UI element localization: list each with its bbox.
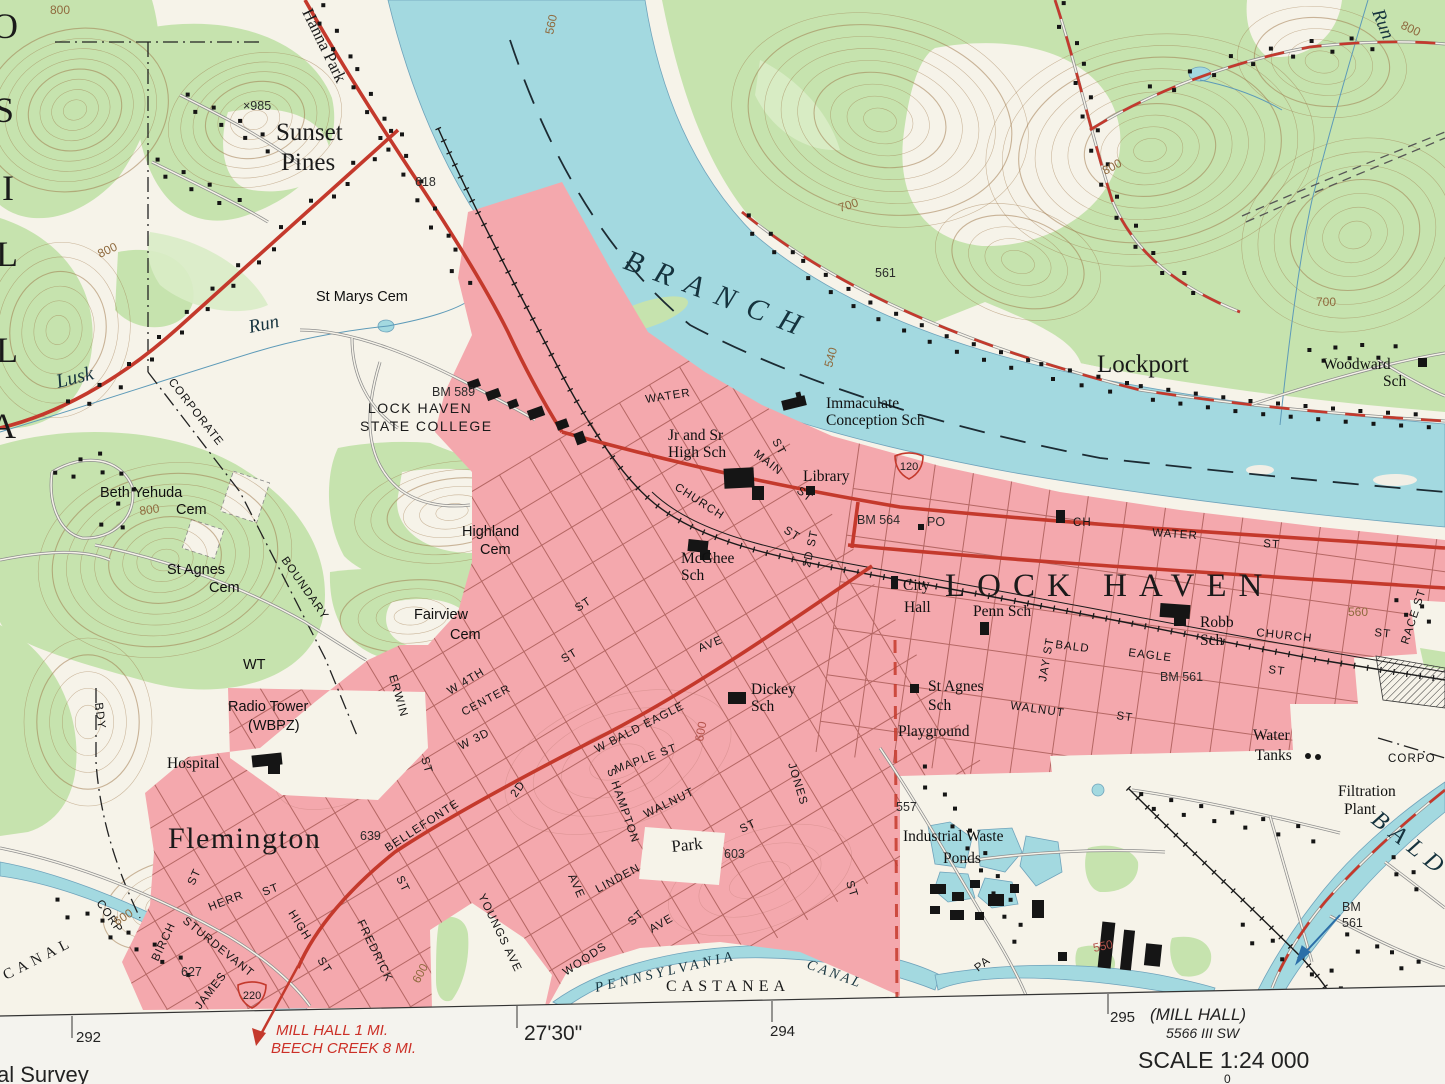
label-wt: WT <box>243 657 266 673</box>
label-radio-tower: Radio Tower <box>228 699 309 715</box>
label-radio-tower-callsign: (WBPZ) <box>248 718 300 734</box>
label-st-agnes-cem: St Agnes <box>167 562 225 578</box>
label-po: PO <box>927 515 945 529</box>
label-park: Park <box>670 834 703 856</box>
label-st-agnes-sch-2: Sch <box>928 697 952 714</box>
road-destination-1: MILL HALL 1 MI. <box>276 1022 388 1039</box>
label-highland-cem: Cem <box>480 542 511 558</box>
label-pines: Pines <box>281 149 335 176</box>
scalebar-zero: 0 <box>1224 1072 1231 1084</box>
label-jr-sr-2: High Sch <box>668 444 726 461</box>
street-water-e-st: ST <box>1263 538 1281 551</box>
tick-294: 294 <box>770 1023 795 1040</box>
label-lockport: Lockport <box>1097 351 1189 378</box>
label-flemington: Flemington <box>168 822 321 855</box>
bm-561-se-1: BM <box>1342 900 1361 914</box>
spot-639: 639 <box>360 829 381 843</box>
label-fairview: Fairview <box>414 607 469 623</box>
street-church-e-st: ST <box>1374 627 1392 641</box>
label-college-2: STATE COLLEGE <box>360 418 493 434</box>
label-immaculate-2: Conception Sch <box>826 412 925 429</box>
bm-589: BM 589 <box>432 385 475 399</box>
topographic-map: 120 220 Sunset Pines Hanna Park Flemingt… <box>0 0 1445 1084</box>
label-playground: Playground <box>898 723 970 740</box>
label-college-1: LOCK HAVEN <box>368 400 472 416</box>
spot-627: 627 <box>181 965 202 979</box>
label-robb: Robb <box>1200 614 1234 631</box>
label-mcghee: McGhee <box>681 550 734 567</box>
label-woodward: Woodward <box>1323 356 1391 373</box>
label-filtration-plant: Plant <box>1344 801 1377 818</box>
label-library: Library <box>803 468 850 485</box>
pond <box>1092 784 1104 796</box>
map-canvas: 120 220 Sunset Pines Hanna Park Flemingt… <box>0 0 1445 1084</box>
label-city: City <box>903 577 930 594</box>
boundary-red-dashed <box>895 640 897 1008</box>
bm-564: BM 564 <box>857 513 900 527</box>
label-mcghee-sch: Sch <box>681 567 705 584</box>
survey-credit: cal Survey <box>0 1062 89 1084</box>
bm-561-city: BM 561 <box>1160 670 1203 684</box>
spot-561: 561 <box>875 266 896 280</box>
edge-letter: I <box>2 168 14 208</box>
quad-id: 5566 III SW <box>1166 1025 1241 1041</box>
label-filtration: Filtration <box>1338 783 1396 800</box>
bm-561-se-2: 561 <box>1342 916 1363 930</box>
edge-letter: S <box>0 90 14 130</box>
tick-2730: 27'30" <box>524 1022 582 1045</box>
scale-text: SCALE 1:24 000 <box>1138 1047 1309 1073</box>
label-hall: Hall <box>904 599 931 616</box>
label-jr-sr-1: Jr and Sr <box>668 427 724 444</box>
label-water-tanks-2: Tanks <box>1255 747 1292 764</box>
label-industrial-waste: Industrial Waste <box>903 828 1004 845</box>
spot-985: ×985 <box>243 99 271 113</box>
edge-letter: A <box>0 406 16 446</box>
edge-letter: L <box>0 234 18 274</box>
spot-557: 557 <box>896 800 917 814</box>
contour-800-a: 800 <box>50 3 70 17</box>
label-hospital: Hospital <box>167 755 220 772</box>
label-st-marys-cem: St Marys Cem <box>316 289 408 305</box>
label-lock-haven: LOCK HAVEN <box>945 568 1274 604</box>
label-fairview-cem: Cem <box>450 627 481 643</box>
contour-700-b: 700 <box>1316 295 1336 309</box>
label-corpo: CORPO <box>1388 753 1436 765</box>
label-highland: Highland <box>462 524 519 540</box>
label-st-agnes-sch-1: St Agnes <box>928 678 984 695</box>
label-immaculate-1: Immaculate <box>826 395 899 412</box>
label-beth-yehuda: Beth Yehuda <box>100 485 183 501</box>
shield-120-label: 120 <box>900 461 918 473</box>
spot-603: 603 <box>724 847 745 861</box>
label-woodward-sch: Sch <box>1383 373 1407 390</box>
label-penn-sch: Penn Sch <box>973 603 1031 620</box>
edge-letter: L <box>0 330 18 370</box>
street-walnut-e-st: ST <box>1116 710 1134 724</box>
label-industrial-ponds: Ponds <box>943 850 981 867</box>
edge-letter: O <box>0 6 18 46</box>
contour-560-b: 560 <box>1348 605 1368 619</box>
label-robb-sch: Sch <box>1200 632 1224 649</box>
label-water-tanks-1: Water <box>1253 727 1290 744</box>
label-castanea: CASTANEA <box>666 978 790 995</box>
label-beth-yehuda-cem: Cem <box>176 502 207 518</box>
label-sunset: Sunset <box>276 119 343 146</box>
street-bald-eagle-st: ST <box>1268 664 1286 678</box>
spot-618: 618 <box>415 175 436 189</box>
tick-295: 295 <box>1110 1009 1135 1026</box>
shield-220-label: 220 <box>243 990 261 1002</box>
label-church-abbrev: CH <box>1073 517 1092 529</box>
label-dickey: Dickey <box>751 681 796 698</box>
label-st-agnes-cem2: Cem <box>209 580 240 596</box>
contour-800-d: 800 <box>138 501 160 518</box>
tick-292: 292 <box>76 1029 101 1046</box>
label-dickey-sch: Sch <box>751 698 775 715</box>
road-destination-2: BEECH CREEK 8 MI. <box>271 1040 416 1057</box>
adjoining-quad: (MILL HALL) <box>1150 1005 1246 1024</box>
